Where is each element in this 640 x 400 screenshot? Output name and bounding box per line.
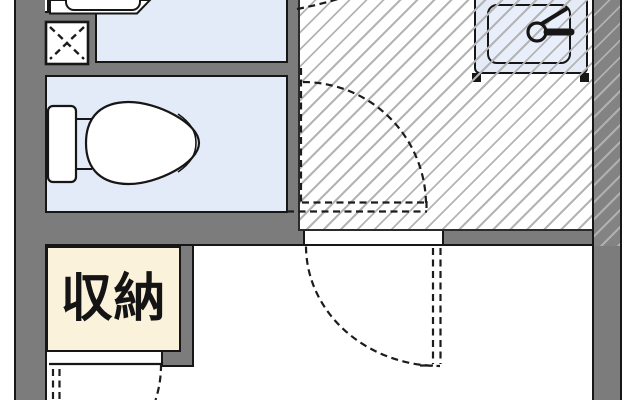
wall-closet-right: [181, 246, 194, 352]
washroom-floor: [95, 0, 288, 63]
wall-right-upper: [592, 0, 622, 246]
floor-plan: 収納: [0, 0, 640, 400]
main-room-door-swing: [306, 247, 441, 367]
wall-rooms-kitchen: [288, 0, 298, 213]
kitchen-area: [298, 0, 592, 231]
storage-label: 収納: [60, 273, 166, 325]
storage-door-swing: [53, 364, 161, 400]
toilet-room-floor: [45, 75, 288, 213]
storage-closet: 収納: [46, 246, 181, 352]
wall-left: [14, 0, 45, 400]
wall-band-washroom-toilet: [45, 63, 298, 75]
wall-band-bottom-left: [45, 213, 305, 244]
wall-right-lower: [592, 246, 622, 400]
kitchen-floor-hatch: [300, 0, 592, 229]
wall-closet-jamb: [161, 350, 194, 367]
wall-band-kitchen-bottom: [442, 231, 592, 244]
